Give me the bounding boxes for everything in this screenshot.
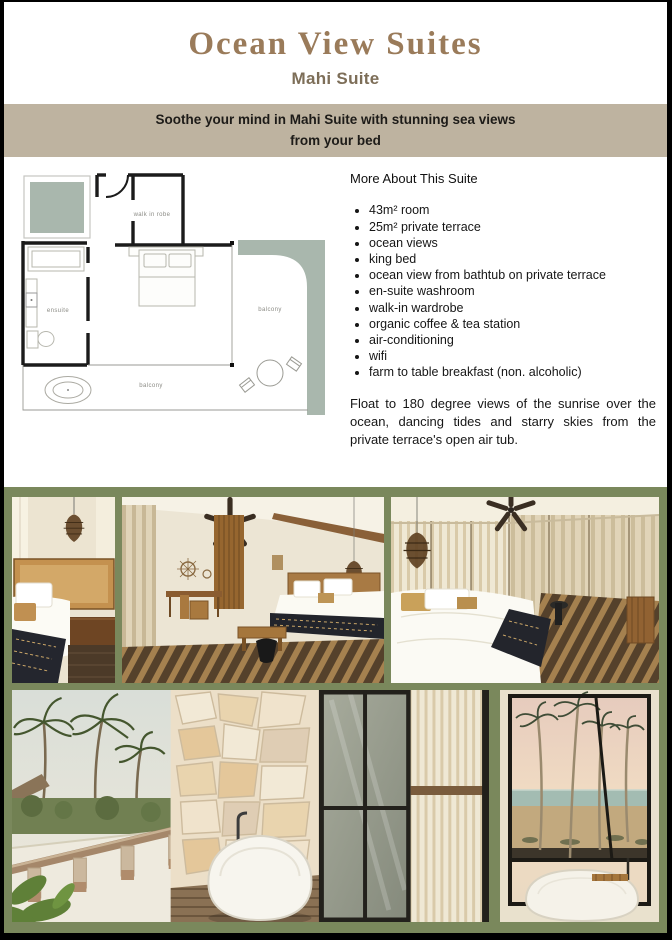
photo-bedroom-wide [122, 497, 384, 683]
amenity-item: farm to table breakfast (non. alcoholic) [369, 364, 656, 380]
amenity-item: en-suite washroom [369, 283, 656, 299]
amenity-item: ocean view from bathtub on private terra… [369, 267, 656, 283]
amenity-item: air-conditioning [369, 332, 656, 348]
photo-terrace-panorama [12, 690, 489, 922]
header: Ocean View Suites Mahi Suite [4, 2, 667, 89]
label-ensuite: ensuite [47, 308, 69, 314]
content-row: walk in robe ensuite balcony balcony Mor… [4, 157, 667, 463]
suite-details: More About This Suite 43m² room25m² priv… [350, 163, 656, 448]
amenity-item: king bed [369, 251, 656, 267]
photo-window-bathtub [500, 690, 659, 922]
label-balcony-bottom: balcony [139, 383, 162, 389]
amenity-item: 25m² private terrace [369, 219, 656, 235]
photo-bedroom-headboard [12, 497, 115, 683]
floor-plan-drawing: walk in robe ensuite balcony balcony [18, 163, 340, 417]
amenity-item: organic coffee & tea station [369, 316, 656, 332]
amenity-item: ocean views [369, 235, 656, 251]
floor-plan: walk in robe ensuite balcony balcony [18, 163, 340, 422]
tagline-text: Soothe your mind in Mahi Suite with stun… [141, 110, 531, 152]
label-walk-in-robe: walk in robe [133, 212, 171, 218]
details-paragraph: Float to 180 degree views of the sunrise… [350, 395, 656, 449]
amenity-item: 43m² room [369, 202, 656, 218]
amenity-item: walk-in wardrobe [369, 300, 656, 316]
label-balcony-right: balcony [258, 307, 281, 313]
suite-flyer-page: Ocean View Suites Mahi Suite Soothe your… [4, 2, 667, 933]
page-subtitle: Mahi Suite [4, 69, 667, 89]
photo-gallery [4, 487, 667, 933]
tagline-banner: Soothe your mind in Mahi Suite with stun… [4, 104, 667, 157]
details-heading: More About This Suite [350, 171, 656, 186]
amenities-list: 43m² room25m² private terraceocean views… [352, 202, 656, 380]
amenity-item: wifi [369, 348, 656, 364]
photo-bedroom-corner [391, 497, 659, 683]
page-title: Ocean View Suites [4, 26, 667, 62]
